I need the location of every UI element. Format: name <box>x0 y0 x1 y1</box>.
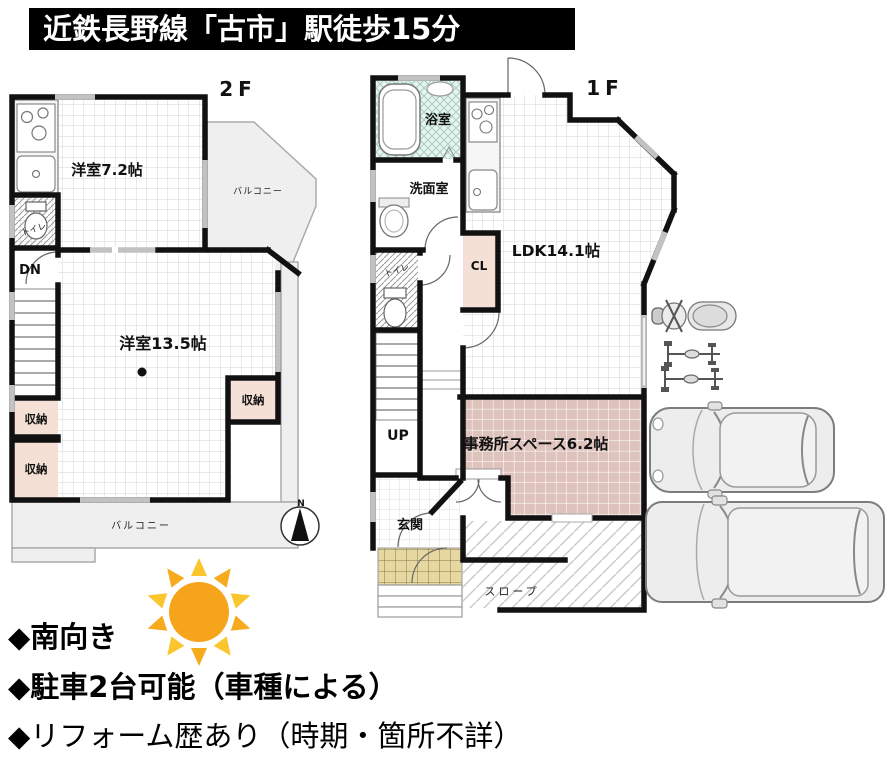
floorplan-drawing: 2F 洋室7.2帖 洋室13.5帖 バルコニー バルコニー トイレ DN 収納 … <box>0 0 895 768</box>
room-label-western-7-2: 洋室7.2帖 <box>71 161 143 179</box>
bicycle-icon <box>661 366 723 392</box>
stairs-2f <box>14 289 58 396</box>
storage-label-2: 収納 <box>25 462 48 476</box>
stairs-up-label: UP <box>387 428 409 444</box>
floor1-label: 1F <box>586 76 624 100</box>
toilet-1f-icon <box>376 252 418 328</box>
slope-label: スロープ <box>484 585 539 598</box>
car-icon <box>646 496 884 608</box>
floor-plan-1f: 1F 浴室 洗面室 トイレ CL LDK14.1帖 UP 事務所スペース6.2帖… <box>373 58 674 617</box>
feature-south-facing: ◆南向き <box>8 614 117 656</box>
balcony-side-label: バルコニー <box>233 186 283 197</box>
bath-label: 浴室 <box>425 112 451 128</box>
ldk-label: LDK14.1帖 <box>512 241 601 260</box>
sun-icon <box>145 558 253 666</box>
balcony-bottom-label: バルコニー <box>111 520 171 532</box>
toilet-2f-icon <box>14 197 58 246</box>
washroom-label: 洗面室 <box>409 181 448 197</box>
washbasin-icon <box>379 198 409 237</box>
entrance-label: 玄関 <box>397 517 423 533</box>
kitchen-unit-1f-icon <box>466 98 500 212</box>
stairs-down-label: DN <box>19 263 41 278</box>
floor2-label: 2F <box>219 77 257 101</box>
closet-label: CL <box>471 259 488 273</box>
storage-label-3: 収納 <box>242 393 265 407</box>
feature-renovation: ◆リフォーム歴あり（時期・箇所不詳） <box>8 713 522 755</box>
porch-steps <box>378 585 462 617</box>
car-icon <box>650 402 834 498</box>
scooter-icon <box>652 300 736 332</box>
storage-label-1: 収納 <box>25 412 48 426</box>
feature-parking: ◆駐車2台可能（車種による） <box>8 664 398 706</box>
compass-north-label: N <box>297 499 305 509</box>
floor-plan-2f: 2F 洋室7.2帖 洋室13.5帖 バルコニー バルコニー トイレ DN 収納 … <box>12 77 316 562</box>
bicycle-icon <box>664 341 720 367</box>
office-label: 事務所スペース6.2帖 <box>464 435 609 453</box>
office-window <box>552 514 592 522</box>
ceiling-light-dot <box>138 368 147 377</box>
porch <box>378 548 462 585</box>
room-label-western-13-5: 洋室13.5帖 <box>119 334 206 353</box>
kitchen-unit-2f-icon <box>14 100 58 195</box>
vehicles <box>646 300 884 608</box>
floorplan-flyer: 近鉄長野線「古市」駅徒歩15分 <box>0 0 895 768</box>
